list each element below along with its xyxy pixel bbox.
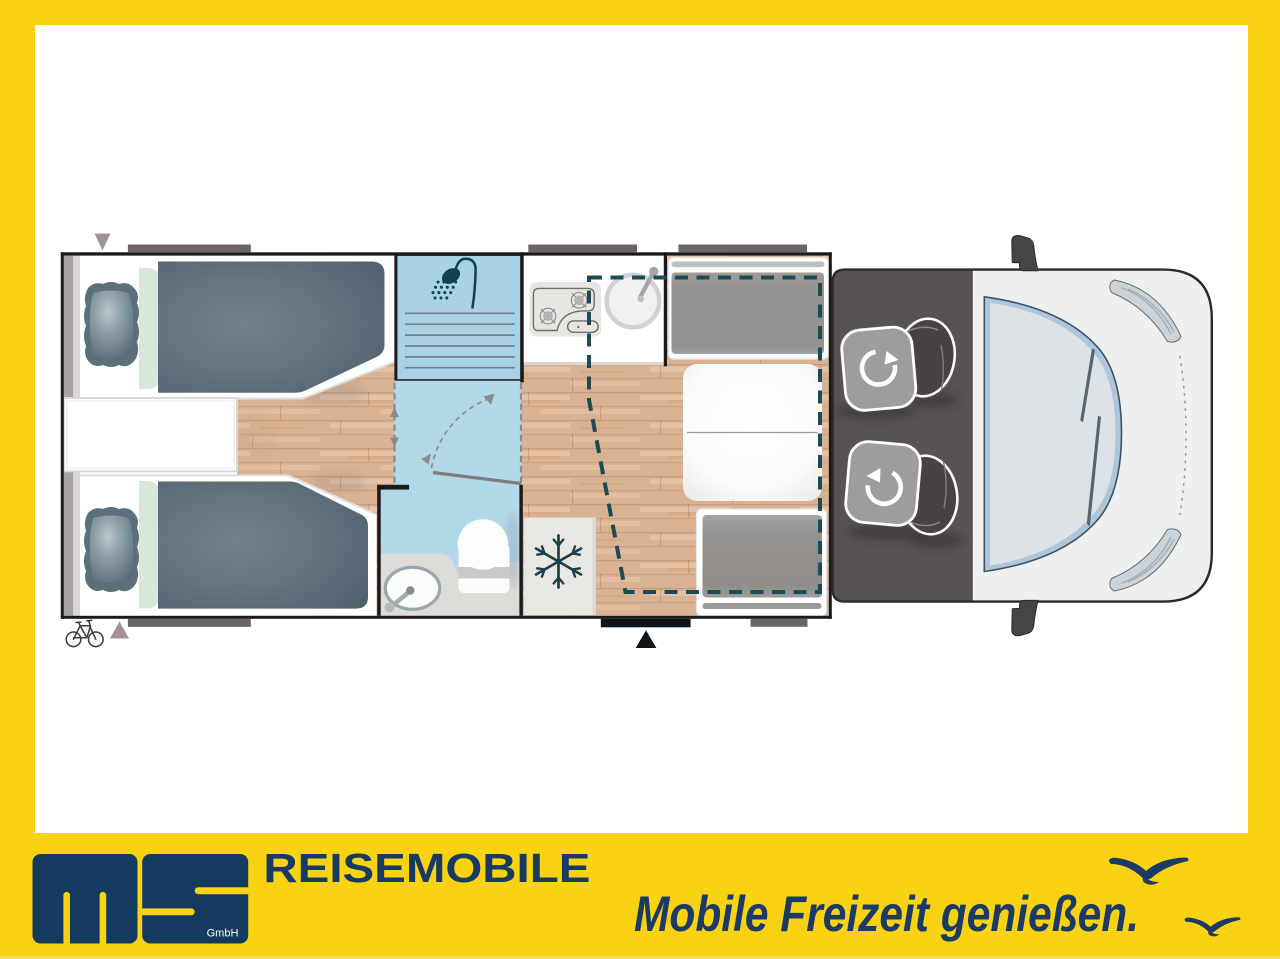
svg-text:Mobile Freizeit genießen.: Mobile Freizeit genießen. <box>634 886 1139 942</box>
svg-text:REISEMOBILE: REISEMOBILE <box>263 845 590 891</box>
svg-text:GmbH: GmbH <box>207 928 239 940</box>
